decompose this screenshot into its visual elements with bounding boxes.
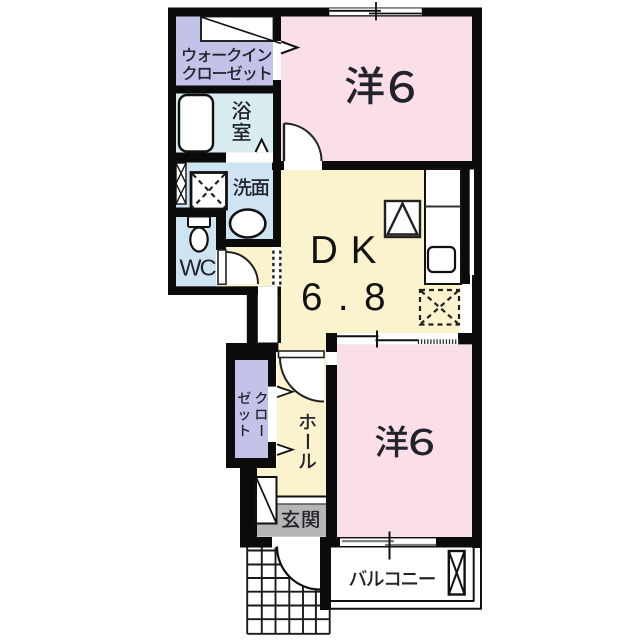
svg-text:DK: DK bbox=[310, 229, 389, 272]
svg-text:WC: WC bbox=[179, 255, 216, 281]
svg-text:6.8: 6.8 bbox=[301, 276, 401, 319]
